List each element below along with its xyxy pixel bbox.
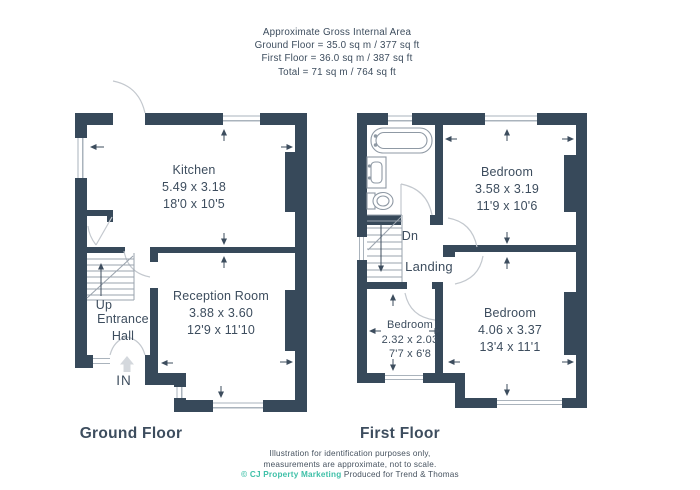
room-name: Kitchen bbox=[162, 162, 226, 179]
bedroom3-label: Bedroom 2.32 x 2.03 7'7 x 6'8 bbox=[382, 318, 439, 362]
bedroom1-door-arc bbox=[448, 218, 477, 247]
area-summary: Approximate Gross Internal Area Ground F… bbox=[255, 26, 420, 79]
sink-tap bbox=[368, 177, 370, 179]
room-size-metric: 4.06 x 3.37 bbox=[478, 322, 542, 339]
room-name: Reception Room bbox=[173, 288, 269, 305]
entrance-line1: Entrance bbox=[97, 311, 149, 328]
back-door-arc bbox=[113, 81, 145, 113]
bathtub-inner bbox=[376, 133, 427, 149]
room-size-imperial: 11'9 x 10'6 bbox=[475, 198, 539, 215]
credit-line: © CJ Property Marketing Produced for Tre… bbox=[241, 470, 459, 481]
first-floor-title: First Floor bbox=[360, 425, 440, 443]
cupboard-door bbox=[88, 217, 112, 245]
area-summary-first: First Floor = 36.0 sq m / 387 sq ft bbox=[255, 52, 420, 65]
room-name: Bedroom bbox=[382, 318, 439, 333]
landing-label: Landing bbox=[405, 259, 453, 274]
floorplan-page: Approximate Gross Internal Area Ground F… bbox=[0, 0, 700, 490]
bath-tap bbox=[374, 135, 376, 137]
entrance-line2: Hall bbox=[97, 328, 149, 345]
room-size-metric: 2.32 x 2.03 bbox=[382, 333, 439, 348]
disclaimer-line2: measurements are approximate, not to sca… bbox=[241, 460, 459, 471]
dn-label: Dn bbox=[402, 229, 418, 243]
room-size-imperial: 13'4 x 11'1 bbox=[478, 339, 542, 356]
bedroom2-door-arc bbox=[455, 256, 483, 284]
disclaimer: Illustration for identification purposes… bbox=[241, 449, 459, 481]
in-label: IN bbox=[116, 373, 132, 388]
area-summary-total: Total = 71 sq m / 764 sq ft bbox=[255, 66, 420, 79]
bedroom1-label: Bedroom 3.58 x 3.19 11'9 x 10'6 bbox=[475, 164, 539, 215]
room-size-imperial: 7'7 x 6'8 bbox=[382, 347, 439, 362]
bathroom-fixtures bbox=[367, 128, 432, 210]
sink-tap bbox=[368, 165, 370, 167]
disclaimer-line1: Illustration for identification purposes… bbox=[241, 449, 459, 460]
room-size-metric: 3.88 x 3.60 bbox=[173, 305, 269, 322]
credit-brand: © CJ Property Marketing bbox=[241, 470, 341, 479]
kitchen-label: Kitchen 5.49 x 3.18 18'0 x 10'5 bbox=[162, 162, 226, 213]
kitchen-door-arc bbox=[124, 251, 150, 277]
entry-arrow-icon bbox=[120, 356, 134, 372]
room-name: Bedroom bbox=[475, 164, 539, 181]
entrance-hall-label: Entrance Hall bbox=[97, 311, 149, 345]
bedroom2-label: Bedroom 4.06 x 3.37 13'4 x 11'1 bbox=[478, 305, 542, 356]
up-label: Up bbox=[96, 298, 112, 312]
room-size-imperial: 18'0 x 10'5 bbox=[162, 196, 226, 213]
room-size-metric: 3.58 x 3.19 bbox=[475, 181, 539, 198]
sink-basin bbox=[371, 162, 382, 183]
area-summary-ground: Ground Floor = 35.0 sq m / 377 sq ft bbox=[255, 39, 420, 52]
stairs-down bbox=[367, 215, 402, 282]
bath-tap bbox=[374, 144, 376, 146]
room-size-imperial: 12'9 x 11'10 bbox=[173, 322, 269, 339]
room-size-metric: 5.49 x 3.18 bbox=[162, 179, 226, 196]
reception-label: Reception Room 3.88 x 3.60 12'9 x 11'10 bbox=[173, 288, 269, 339]
area-summary-title: Approximate Gross Internal Area bbox=[255, 26, 420, 39]
bathroom-door-arc bbox=[401, 184, 432, 215]
credit-produced: Produced for Trend & Thomas bbox=[344, 470, 459, 479]
bedroom3-door-arc bbox=[405, 293, 435, 320]
ground-floor-title: Ground Floor bbox=[80, 425, 183, 443]
toilet-bowl-inner bbox=[377, 196, 389, 206]
room-name: Bedroom bbox=[478, 305, 542, 322]
